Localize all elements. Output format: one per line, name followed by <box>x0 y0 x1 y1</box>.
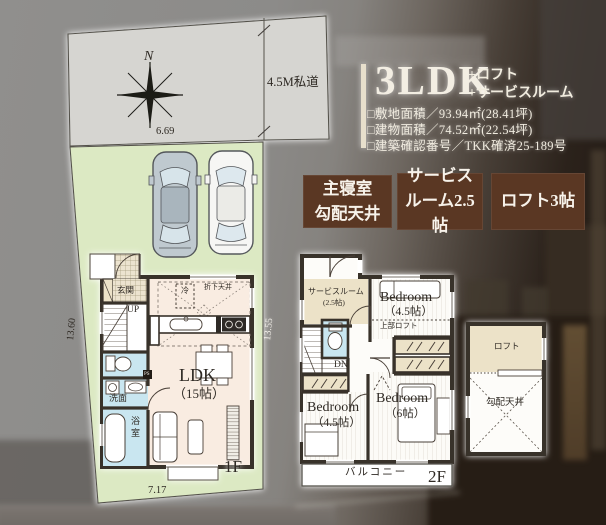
low-table-icon <box>188 420 203 454</box>
desk-icon <box>437 398 450 434</box>
loft-edge <box>498 370 542 376</box>
ps-label: PS <box>144 372 150 377</box>
porch-canopy <box>90 254 115 279</box>
ldk-label: LDK <box>179 366 216 384</box>
bedroom3-label: Bedroom <box>376 392 428 406</box>
stairs-up <box>103 303 127 352</box>
floor1-label: 1F <box>224 458 242 475</box>
title-sub1: +ロフト <box>468 64 518 84</box>
road-width-label: 4.5M私道 <box>267 76 319 89</box>
service-size-label: (2.5帖) <box>323 299 345 307</box>
badge-line: ロフト3帖 <box>501 189 575 214</box>
terrace-step <box>168 467 218 480</box>
dropped-ceiling-label: 折下天井 <box>204 284 232 291</box>
badge-master-bedroom: 主寝室 勾配天井 <box>303 175 392 228</box>
bedroom2-label: Bedroom <box>307 401 359 415</box>
floor2-label: 2F <box>428 468 446 485</box>
dim-top: 6.69 <box>156 127 174 138</box>
tv-board-icon <box>227 406 239 460</box>
toilet-icon-2f <box>328 333 342 350</box>
bedroom2-size-label: （4.5帖） <box>312 418 361 430</box>
bedroom3-size-label: （6帖） <box>385 409 425 421</box>
badge-line: ルーム2.5帖 <box>397 189 483 239</box>
ldk-size-label: （15帖） <box>173 387 225 400</box>
up-label: UP <box>127 306 139 316</box>
title-accent-bar <box>361 64 366 148</box>
flyer-canvas: N 4.5M私道 6.69 13.60 7.17 13.55 玄関 UP 洗面 … <box>0 0 606 525</box>
badge-line: サービス <box>407 164 473 189</box>
dn-label: DN <box>334 361 348 371</box>
genkan-label: 玄関 <box>117 286 134 295</box>
toilet-icon-1f <box>115 357 131 371</box>
loft-ceiling-label: 勾配天井 <box>486 399 524 409</box>
badge-service-room: サービス ルーム2.5帖 <box>397 173 483 230</box>
bath-label: 浴室 <box>130 416 139 440</box>
loft-label: ロフト <box>494 342 520 351</box>
car-1 <box>149 152 201 257</box>
badge-loft: ロフト3帖 <box>491 173 585 230</box>
north-label: N <box>144 50 153 64</box>
title-sub2: +サービスルーム <box>468 82 574 102</box>
senmen-label: 洗面 <box>109 394 127 403</box>
badge-line: 主寝室 <box>323 177 373 202</box>
bedroom1-size-label: （4.5帖） <box>384 307 433 319</box>
bedroom1-label: Bedroom <box>380 291 432 305</box>
service-room-label: サービスルーム <box>308 288 364 296</box>
upper-loft-label: 上部ロフト <box>380 322 418 330</box>
badge-line: 勾配天井 <box>315 202 381 227</box>
balcony-label: バルコニー <box>345 468 407 479</box>
bathtub-icon <box>105 414 125 462</box>
spec-confirmation-number: □建築確認番号／TKK確済25-189号 <box>367 135 567 154</box>
dim-bottom: 7.17 <box>148 486 166 497</box>
car-2 <box>205 151 257 254</box>
refrigerator-label: 冷 <box>181 287 189 295</box>
